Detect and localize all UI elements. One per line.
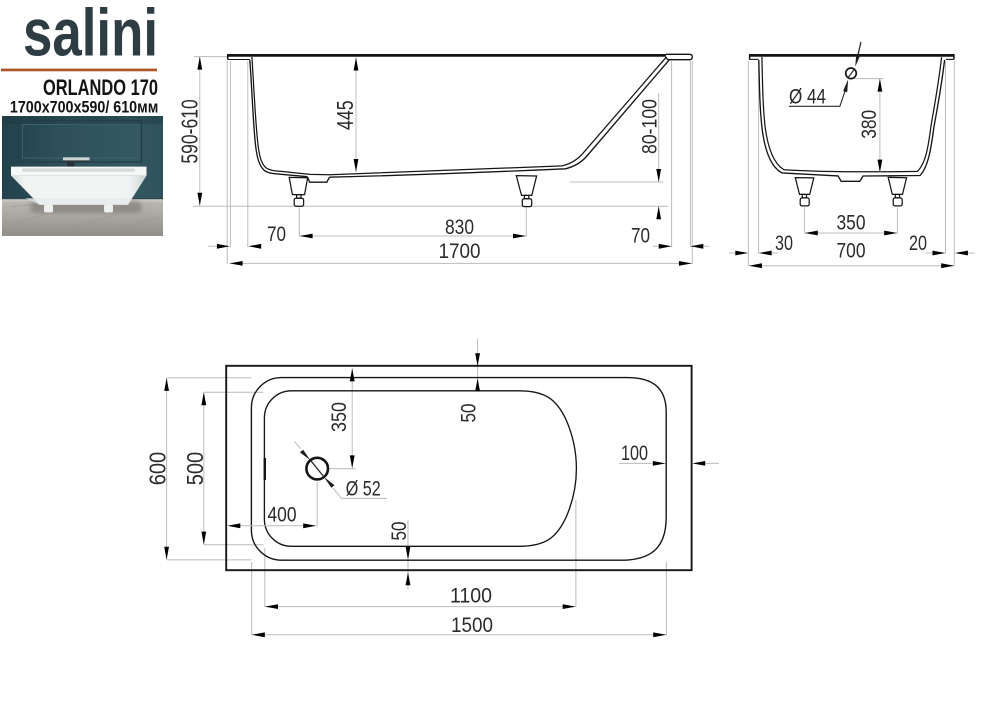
- svg-text:50: 50: [387, 521, 411, 540]
- svg-text:380: 380: [857, 110, 881, 139]
- svg-text:1100: 1100: [450, 584, 492, 608]
- svg-text:1500: 1500: [451, 613, 493, 637]
- svg-text:Ø 44: Ø 44: [789, 85, 826, 109]
- svg-text:445: 445: [332, 100, 358, 130]
- svg-text:400: 400: [268, 503, 297, 527]
- svg-text:salini: salini: [23, 0, 158, 71]
- svg-text:70: 70: [267, 222, 286, 246]
- svg-text:350: 350: [327, 402, 351, 432]
- svg-text:500: 500: [182, 452, 208, 486]
- svg-text:100: 100: [621, 441, 648, 465]
- svg-text:700: 700: [837, 238, 866, 262]
- svg-text:ORLANDO 170: ORLANDO 170: [43, 75, 158, 100]
- svg-text:Ø 52: Ø 52: [346, 477, 381, 501]
- svg-text:50: 50: [457, 403, 481, 422]
- svg-text:1700x700x590/ 610мм: 1700x700x590/ 610мм: [10, 98, 158, 116]
- svg-text:590-610: 590-610: [176, 99, 202, 163]
- svg-text:70: 70: [631, 224, 650, 248]
- svg-text:350: 350: [837, 210, 866, 234]
- svg-text:30: 30: [775, 231, 793, 255]
- svg-text:1700: 1700: [439, 239, 481, 263]
- svg-text:80-100: 80-100: [638, 99, 662, 154]
- svg-text:830: 830: [445, 215, 474, 239]
- svg-text:20: 20: [909, 231, 927, 255]
- svg-text:600: 600: [145, 452, 171, 486]
